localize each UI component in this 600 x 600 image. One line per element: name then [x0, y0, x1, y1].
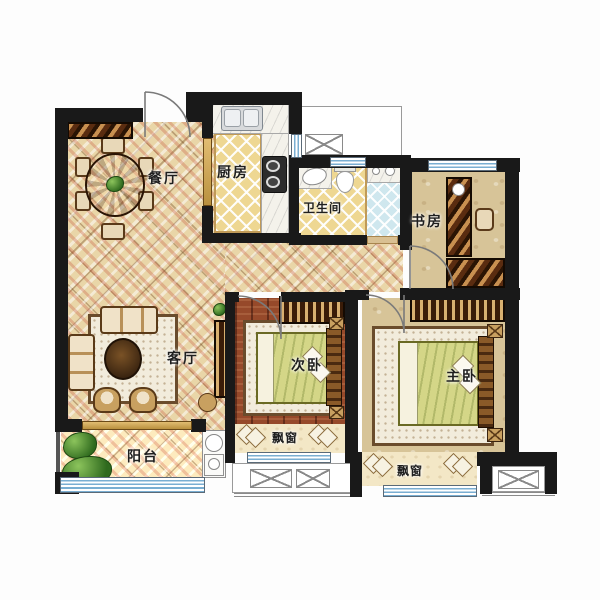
entry-cabinet: [67, 122, 133, 139]
shower-floor: [367, 183, 402, 237]
ac-x-icon: [296, 469, 330, 488]
balcony-sliding-door: [82, 421, 192, 430]
bathroom-window: [330, 157, 366, 167]
balcony-window: [60, 477, 205, 493]
wall-living-bed2: [225, 292, 235, 463]
wall-bath-left: [289, 155, 299, 245]
study-window: [428, 160, 497, 171]
sink-basin: [243, 109, 259, 127]
nightstand: [487, 428, 503, 442]
kitchen-sliding-door: [203, 138, 212, 206]
wall-kitchen-left-a: [202, 104, 213, 138]
ac-x-icon: [250, 469, 292, 488]
wall-left: [55, 108, 68, 432]
wall-ac-left: [480, 466, 492, 494]
dining-chair: [101, 223, 125, 240]
room-label-bay-window-master: 飘窗: [397, 462, 423, 479]
dining-chair: [101, 137, 125, 154]
wall-ac-right: [545, 466, 557, 494]
study-wardrobe: [446, 258, 505, 288]
room-label-kitchen: 厨房: [217, 162, 249, 182]
wall-top-dining: [55, 108, 143, 122]
laundry-basin-icon: [205, 434, 223, 452]
wall-kitchen-right: [289, 92, 302, 134]
burner-icon: [266, 176, 280, 188]
room-label-living: 客厅: [167, 348, 199, 368]
ac-x-icon: [498, 470, 539, 489]
kitchen-window: [291, 134, 302, 158]
burner-icon: [266, 160, 280, 172]
master-bed-sheet: [400, 343, 418, 424]
wall-bath-bottom: [289, 235, 367, 245]
wall-study-bottom: [400, 288, 520, 300]
wall-bay2-left: [350, 452, 362, 497]
room-label-master-bedroom: 主卧: [446, 366, 478, 386]
bay-window-secondary-glass: [247, 452, 331, 463]
washbasin-icon: [372, 167, 380, 175]
room-label-bathroom: 卫生间: [303, 199, 342, 216]
wall-bed2-top-r: [281, 292, 345, 302]
sill-line: [234, 493, 351, 497]
nightstand: [329, 406, 344, 419]
bathroom-door: [367, 236, 398, 244]
desk-chair: [475, 208, 494, 231]
armchair: [129, 387, 157, 413]
nightstand: [487, 324, 503, 338]
wall-right: [505, 158, 519, 456]
nightstand: [329, 317, 344, 330]
room-label-balcony: 阳台: [127, 446, 159, 466]
desk-lamp-icon: [452, 183, 465, 196]
wall-kitchen-bottom: [202, 233, 301, 243]
wall-bed2-master: [345, 292, 358, 463]
sofa: [68, 334, 95, 391]
floor-plan: 餐厅 厨房 卫生间 书房 客厅 次卧 主卧 阳台 飘窗 飘窗: [0, 0, 600, 600]
wall-balcony-r-chunk: [191, 419, 206, 432]
room-label-dining: 餐厅: [148, 168, 180, 188]
wall-balcony-l-chunk: [61, 419, 82, 432]
room-label-bay-window-secondary: 飘窗: [272, 429, 298, 446]
washer-door-icon: [208, 458, 220, 470]
sink-basin: [224, 109, 241, 127]
toilet-bowl: [336, 171, 354, 193]
secondary-bed-sheet: [258, 334, 274, 402]
room-label-secondary-bedroom: 次卧: [291, 355, 323, 375]
room-label-study: 书房: [411, 211, 443, 231]
armchair: [93, 387, 121, 413]
wall-master-bottom: [477, 452, 557, 466]
loveseat: [100, 306, 158, 334]
coffee-table: [104, 338, 142, 380]
kitchen-floor: [214, 133, 262, 233]
bay-window-master-glass: [383, 485, 477, 497]
side-table: [198, 393, 217, 412]
shaft-x-icon: [305, 134, 343, 155]
secondary-headboard: [326, 328, 342, 406]
hallway-floor: [225, 242, 403, 292]
